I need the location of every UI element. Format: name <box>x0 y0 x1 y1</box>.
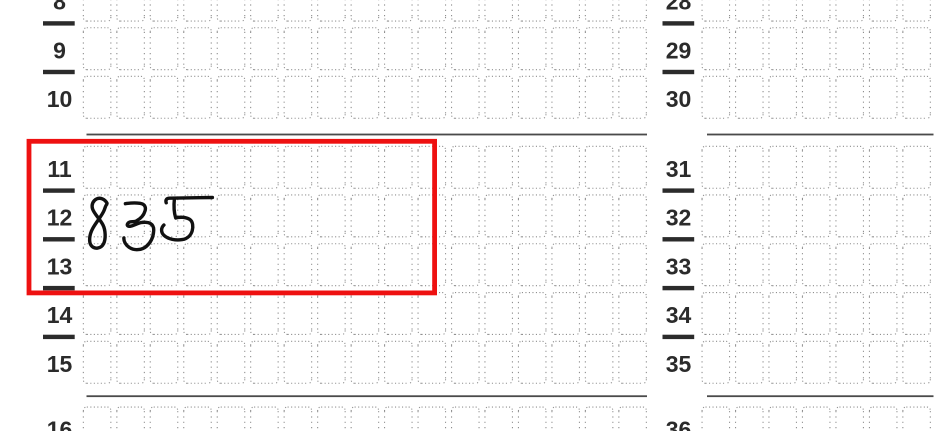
svg-text:14: 14 <box>47 302 73 328</box>
svg-text:36: 36 <box>666 417 692 431</box>
svg-text:13: 13 <box>47 253 73 279</box>
svg-text:11: 11 <box>47 156 72 182</box>
svg-text:33: 33 <box>666 253 692 279</box>
svg-text:10: 10 <box>47 86 73 112</box>
svg-text:31: 31 <box>666 156 692 182</box>
svg-text:12: 12 <box>47 205 73 231</box>
svg-text:32: 32 <box>666 205 692 231</box>
svg-text:28: 28 <box>666 0 692 15</box>
svg-text:29: 29 <box>666 37 692 63</box>
svg-text:15: 15 <box>47 351 73 377</box>
svg-text:35: 35 <box>666 351 692 377</box>
svg-text:9: 9 <box>53 37 66 63</box>
svg-text:8: 8 <box>53 0 66 15</box>
svg-text:34: 34 <box>666 302 692 328</box>
svg-text:30: 30 <box>666 86 692 112</box>
svg-text:16: 16 <box>47 417 73 431</box>
